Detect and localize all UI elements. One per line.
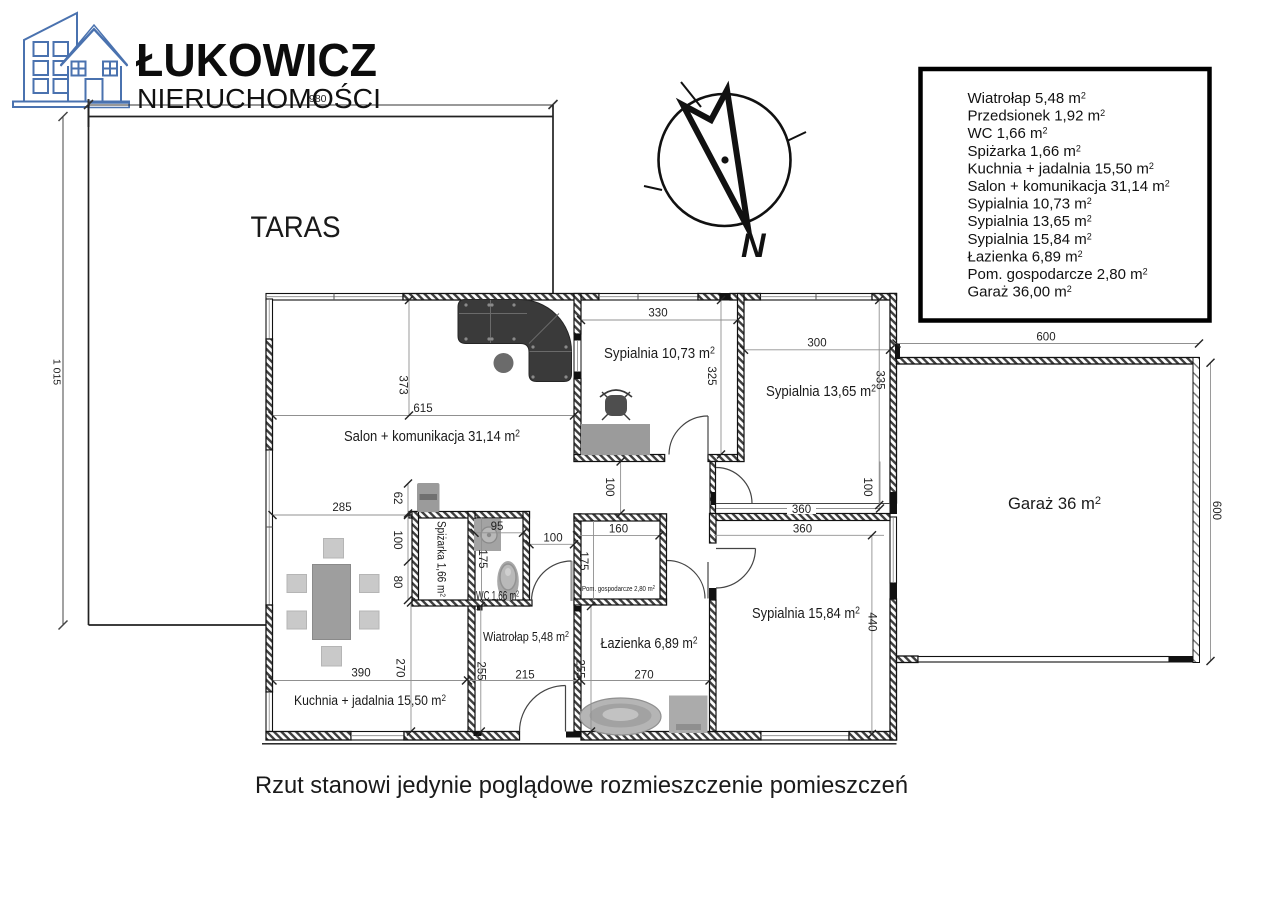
svg-text:Spiżarka 1,66 m2: Spiżarka 1,66 m2 [435,521,448,597]
svg-text:440: 440 [866,612,878,631]
svg-text:Przedsionek 1,92 m2: Przedsionek 1,92 m2 [968,108,1106,125]
svg-text:330: 330 [648,308,667,320]
svg-text:360: 360 [793,523,812,535]
svg-text:100: 100 [603,477,615,496]
svg-text:215: 215 [515,670,534,682]
svg-text:Łazienka 6,89 m2: Łazienka 6,89 m2 [968,248,1083,265]
svg-text:285: 285 [332,502,351,514]
svg-text:Łazienka 6,89 m2: Łazienka 6,89 m2 [601,635,698,652]
svg-text:Wiatrołap 5,48 m2: Wiatrołap 5,48 m2 [968,90,1086,107]
svg-text:300: 300 [807,338,826,350]
svg-text:175: 175 [577,551,589,570]
svg-text:100: 100 [391,530,403,549]
svg-text:373: 373 [397,375,409,394]
svg-text:ŁUKOWICZ: ŁUKOWICZ [136,34,377,86]
svg-text:270: 270 [394,658,406,677]
svg-text:80: 80 [391,576,403,589]
svg-text:270: 270 [634,670,653,682]
svg-text:62: 62 [391,492,403,505]
svg-text:160: 160 [609,523,628,535]
svg-text:Wiatrołap 5,48 m2: Wiatrołap 5,48 m2 [483,629,569,644]
svg-text:Pom. gospodarcze 2,80 m2: Pom. gospodarcze 2,80 m2 [968,266,1148,283]
svg-text:Sypialnia 15,84 m2: Sypialnia 15,84 m2 [752,605,860,622]
svg-text:N: N [741,227,767,265]
svg-text:Salon + komunikacja 31,14 m2: Salon + komunikacja 31,14 m2 [344,428,520,445]
svg-text:NIERUCHOMOŚCI: NIERUCHOMOŚCI [137,82,381,114]
svg-text:Sypialnia 10,73 m2: Sypialnia 10,73 m2 [968,196,1092,213]
svg-text:175: 175 [476,549,488,568]
svg-text:Sypialnia 10,73 m2: Sypialnia 10,73 m2 [604,345,715,362]
svg-text:615: 615 [413,403,432,415]
svg-text:600: 600 [1210,501,1222,520]
svg-text:255: 255 [574,659,586,678]
svg-text:Sypialnia 13,65 m2: Sypialnia 13,65 m2 [968,213,1092,230]
svg-text:Garaż 36 m2: Garaż 36 m2 [1008,495,1101,513]
svg-text:TARAS: TARAS [251,211,341,244]
svg-text:360: 360 [792,504,811,516]
svg-text:Sypialnia 15,84 m2: Sypialnia 15,84 m2 [968,231,1092,248]
svg-text:325: 325 [705,366,717,385]
svg-text:Salon + komunikacja 31,14 m2: Salon + komunikacja 31,14 m2 [968,178,1170,195]
svg-text:Pom. gospodarcze 2,80 m2: Pom. gospodarcze 2,80 m2 [582,584,655,593]
svg-text:Garaż 36,00 m2: Garaż 36,00 m2 [968,284,1072,301]
svg-text:95: 95 [491,521,504,533]
svg-text:100: 100 [861,477,873,496]
svg-text:100: 100 [543,532,562,544]
svg-text:WC 1,66 m2: WC 1,66 m2 [968,125,1048,142]
svg-text:Spiżarka 1,66 m2: Spiżarka 1,66 m2 [968,143,1081,160]
svg-text:390: 390 [351,668,370,680]
svg-text:Kuchnia + jadalnia 15,50 m2: Kuchnia + jadalnia 15,50 m2 [968,160,1154,177]
svg-text:Sypialnia 13,65 m2: Sypialnia 13,65 m2 [766,383,876,400]
svg-text:600: 600 [1036,332,1055,344]
svg-text:Kuchnia + jadalnia 15,50 m2: Kuchnia + jadalnia 15,50 m2 [294,693,446,708]
svg-text:1 015: 1 015 [51,359,63,385]
svg-text:WC 1,66 m2: WC 1,66 m2 [476,589,519,603]
svg-text:255: 255 [475,661,487,680]
svg-text:Rzut stanowi jedynie poglądowe: Rzut stanowi jedynie poglądowe rozmieszc… [255,772,908,799]
